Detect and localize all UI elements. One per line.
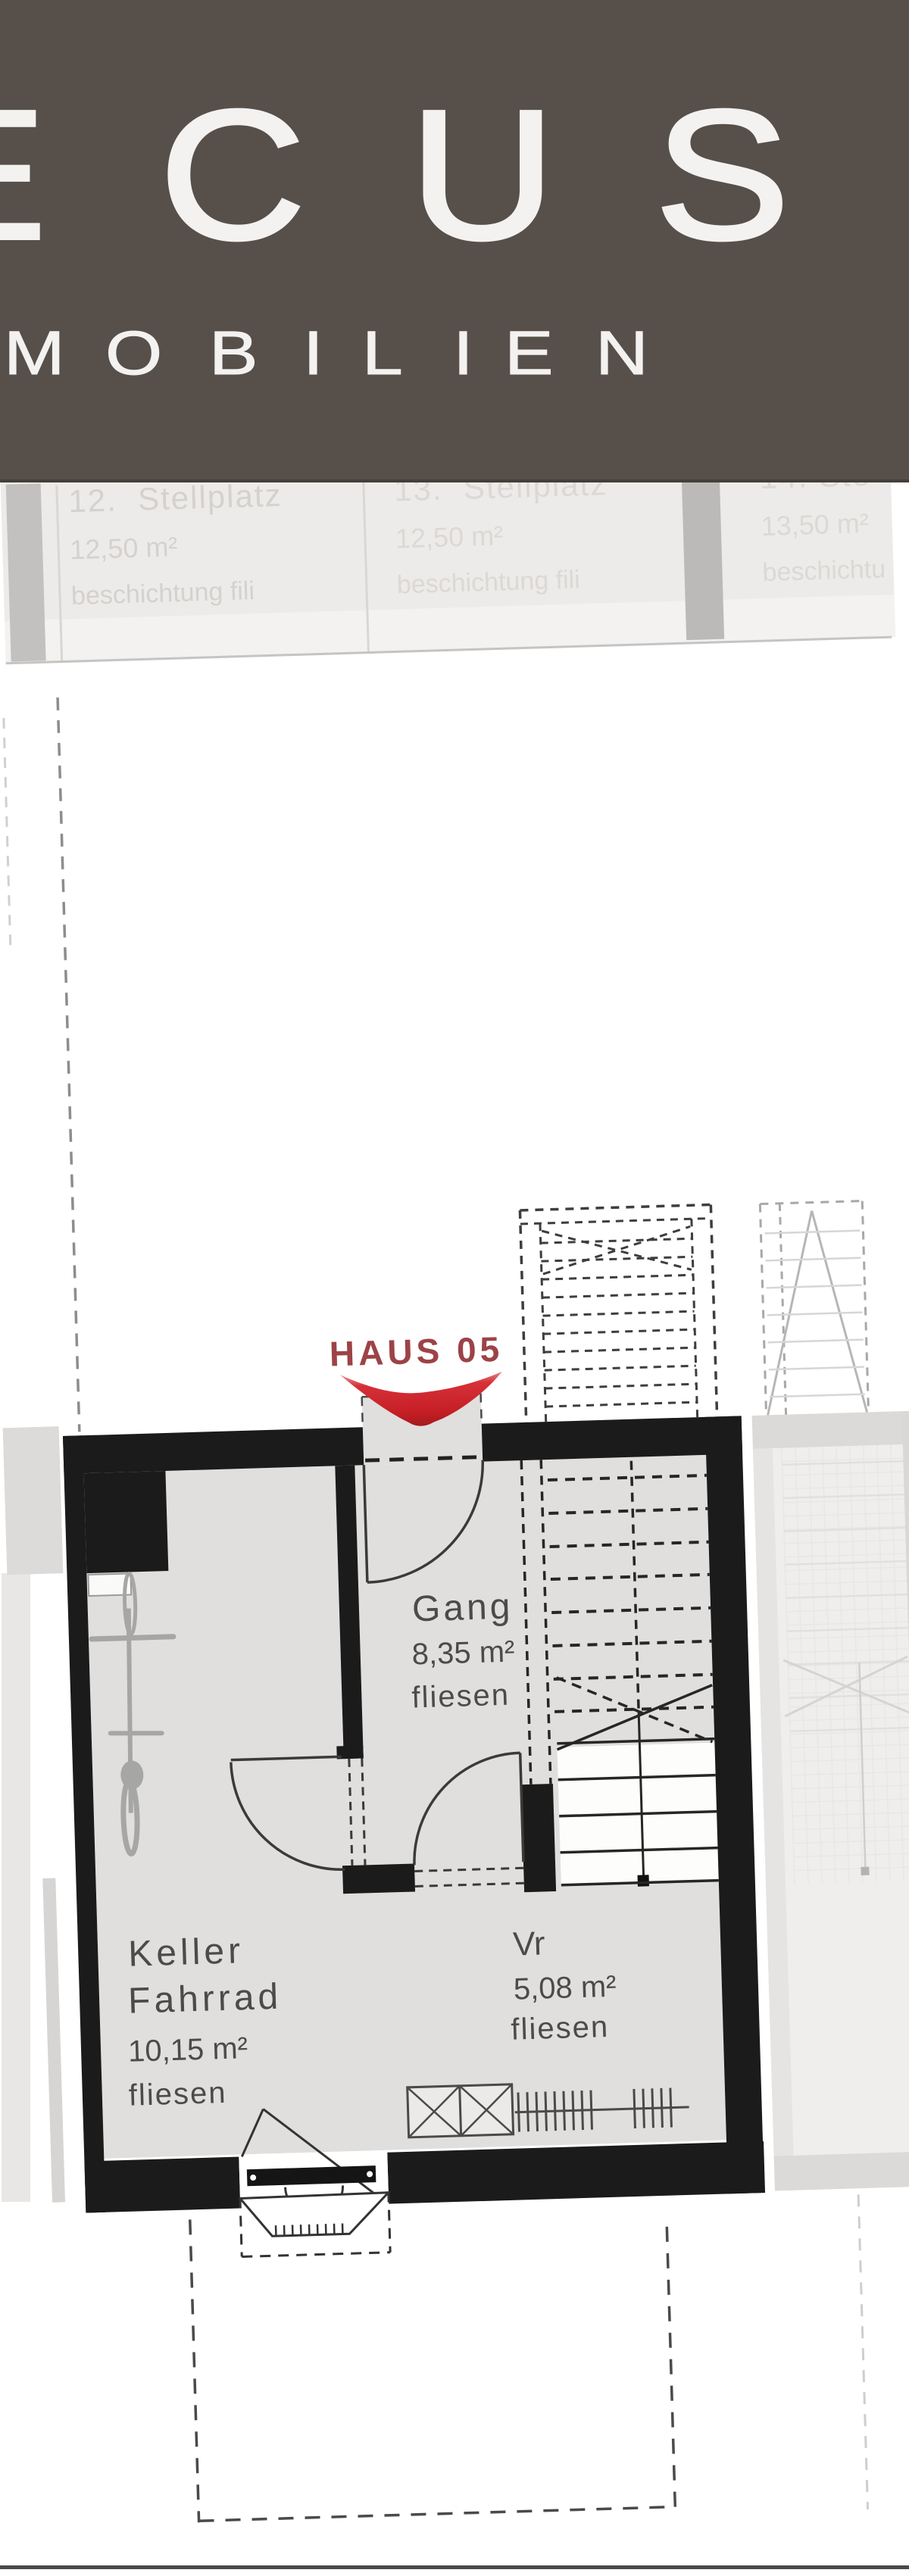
svg-text:HAUS 05: HAUS 05: [329, 1329, 504, 1374]
svg-text:13,50 m²: 13,50 m²: [761, 507, 869, 542]
svg-text:5,08 m²: 5,08 m²: [513, 1970, 617, 2006]
svg-text:S: S: [654, 72, 790, 278]
svg-text:C: C: [159, 72, 306, 278]
svg-text:8,35 m²: 8,35 m²: [411, 1635, 515, 1671]
svg-text:Gang: Gang: [411, 1586, 514, 1629]
svg-text:beschichtung fili: beschichtung fili: [396, 565, 580, 599]
svg-text:beschichtung fili: beschichtung fili: [71, 576, 255, 610]
svg-text:Fahrrad: Fahrrad: [127, 1977, 283, 2022]
svg-text:B: B: [209, 319, 258, 388]
svg-text:12,50 m²: 12,50 m²: [395, 520, 503, 554]
svg-text:E: E: [0, 72, 47, 278]
svg-text:fliesen: fliesen: [411, 1678, 511, 1715]
svg-text:fliesen: fliesen: [511, 2010, 610, 2047]
svg-text:N: N: [595, 319, 648, 388]
svg-text:L: L: [362, 319, 403, 388]
svg-text:Vr: Vr: [512, 1925, 545, 1962]
svg-text:U: U: [409, 72, 556, 278]
svg-text:12. Stellplatz: 12. Stellplatz: [68, 477, 283, 519]
svg-text:I: I: [303, 319, 323, 388]
svg-text:M: M: [4, 319, 65, 388]
svg-text:10,15 m²: 10,15 m²: [127, 2031, 248, 2069]
svg-text:beschichtu: beschichtu: [762, 554, 886, 587]
svg-text:I: I: [453, 319, 473, 388]
svg-text:E: E: [504, 319, 554, 388]
svg-text:O: O: [105, 319, 162, 388]
svg-text:12,50 m²: 12,50 m²: [70, 531, 178, 565]
svg-text:fliesen: fliesen: [128, 2076, 227, 2112]
svg-text:Keller: Keller: [128, 1931, 245, 1975]
